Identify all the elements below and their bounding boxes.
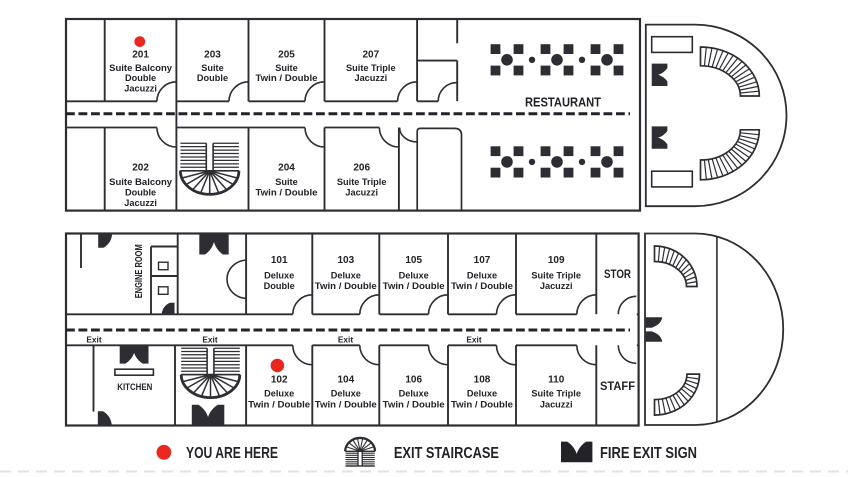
svg-text:105: 105	[405, 255, 422, 266]
svg-text:101: 101	[271, 255, 288, 266]
svg-text:109: 109	[548, 255, 565, 266]
svg-text:Deluxe: Deluxe	[331, 389, 361, 399]
svg-text:ENGINE ROOM: ENGINE ROOM	[133, 244, 145, 298]
svg-text:204: 204	[278, 163, 295, 174]
svg-text:Suite Balcony: Suite Balcony	[109, 63, 173, 73]
svg-text:Suite: Suite	[275, 63, 297, 73]
svg-text:206: 206	[353, 163, 370, 174]
svg-text:Deluxe: Deluxe	[467, 271, 497, 281]
svg-text:FIRE EXIT SIGN: FIRE EXIT SIGN	[600, 445, 697, 462]
svg-text:Exit: Exit	[202, 334, 217, 344]
svg-text:Deluxe: Deluxe	[399, 389, 429, 399]
svg-text:Deluxe: Deluxe	[264, 271, 294, 281]
svg-text:203: 203	[204, 50, 221, 61]
svg-text:STAFF: STAFF	[600, 381, 635, 393]
svg-text:Suite Triple: Suite Triple	[346, 63, 396, 73]
svg-text:Suite: Suite	[275, 177, 297, 187]
svg-text:201: 201	[132, 50, 149, 61]
svg-text:Deluxe: Deluxe	[399, 271, 429, 281]
svg-text:103: 103	[337, 255, 354, 266]
svg-text:Double: Double	[264, 281, 295, 291]
svg-text:Jacuzzi: Jacuzzi	[124, 84, 157, 94]
svg-text:Deluxe: Deluxe	[264, 389, 294, 399]
svg-text:108: 108	[474, 375, 491, 386]
svg-text:104: 104	[337, 375, 354, 386]
svg-text:Jacuzzi: Jacuzzi	[540, 281, 573, 291]
svg-text:Twin / Double: Twin / Double	[451, 399, 513, 409]
svg-text:Suite Triple: Suite Triple	[531, 389, 581, 399]
svg-text:Twin / Double: Twin / Double	[315, 399, 377, 409]
svg-text:Exit: Exit	[466, 334, 481, 344]
svg-text:Deluxe: Deluxe	[331, 271, 361, 281]
svg-text:STOR: STOR	[604, 269, 632, 281]
svg-text:Jacuzzi: Jacuzzi	[345, 188, 378, 198]
svg-text:Twin / Double: Twin / Double	[383, 281, 445, 291]
svg-text:Double: Double	[125, 188, 156, 198]
svg-text:Jacuzzi: Jacuzzi	[540, 399, 573, 409]
svg-text:Exit: Exit	[338, 334, 353, 344]
svg-text:Jacuzzi: Jacuzzi	[124, 198, 157, 208]
svg-text:RESTAURANT: RESTAURANT	[525, 95, 601, 110]
svg-text:106: 106	[405, 375, 422, 386]
svg-text:Twin / Double: Twin / Double	[256, 188, 318, 198]
svg-text:207: 207	[362, 50, 379, 61]
svg-text:102: 102	[271, 375, 288, 386]
svg-text:Deluxe: Deluxe	[467, 389, 497, 399]
svg-text:Suite Balcony: Suite Balcony	[109, 177, 173, 187]
svg-text:110: 110	[548, 375, 565, 386]
svg-text:Suite Triple: Suite Triple	[531, 271, 581, 281]
svg-text:EXIT STAIRCASE: EXIT STAIRCASE	[394, 445, 499, 462]
svg-text:Exit: Exit	[86, 334, 101, 344]
svg-text:202: 202	[132, 163, 149, 174]
svg-text:Twin / Double: Twin / Double	[451, 281, 513, 291]
svg-text:KITCHEN: KITCHEN	[117, 382, 152, 392]
svg-text:Suite: Suite	[201, 63, 223, 73]
svg-text:YOU ARE HERE: YOU ARE HERE	[186, 445, 278, 462]
svg-text:107: 107	[474, 255, 491, 266]
svg-text:Twin / Double: Twin / Double	[315, 281, 377, 291]
svg-text:Twin / Double: Twin / Double	[248, 399, 310, 409]
svg-text:Double: Double	[197, 73, 228, 83]
svg-text:Double: Double	[125, 73, 156, 83]
svg-text:Twin / Double: Twin / Double	[256, 73, 318, 83]
svg-text:205: 205	[278, 50, 295, 61]
svg-text:Twin / Double: Twin / Double	[383, 399, 445, 409]
svg-text:Jacuzzi: Jacuzzi	[354, 73, 387, 83]
svg-text:Suite Triple: Suite Triple	[337, 177, 387, 187]
